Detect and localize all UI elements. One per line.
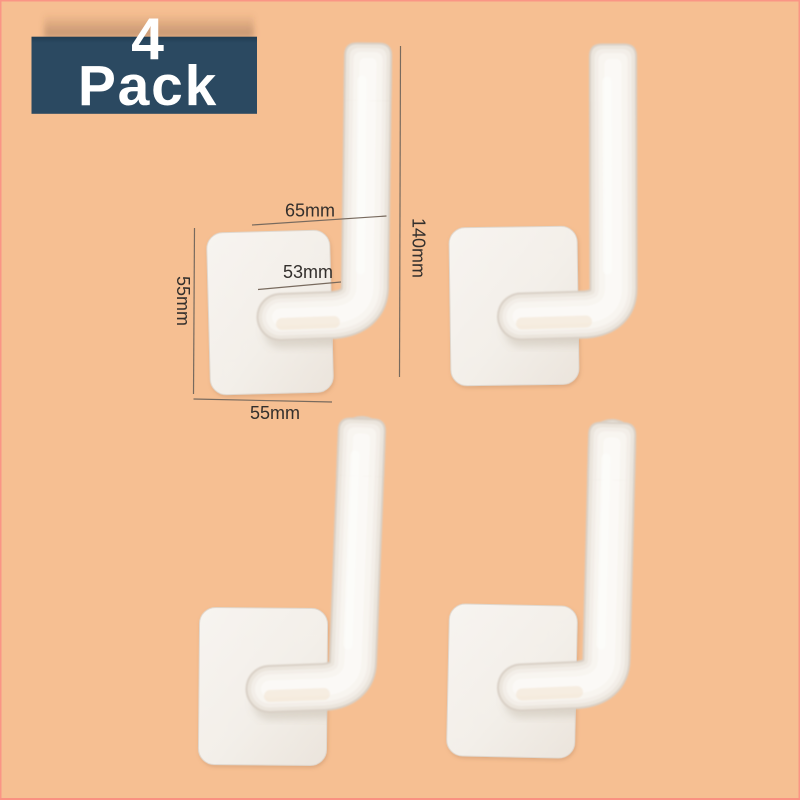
svg-text:Pack: Pack [78,54,218,118]
svg-text:140mm: 140mm [409,218,429,278]
svg-text:65mm: 65mm [285,201,335,221]
svg-text:55mm: 55mm [250,403,300,423]
svg-text:53mm: 53mm [283,262,333,282]
svg-text:55mm: 55mm [173,276,193,326]
